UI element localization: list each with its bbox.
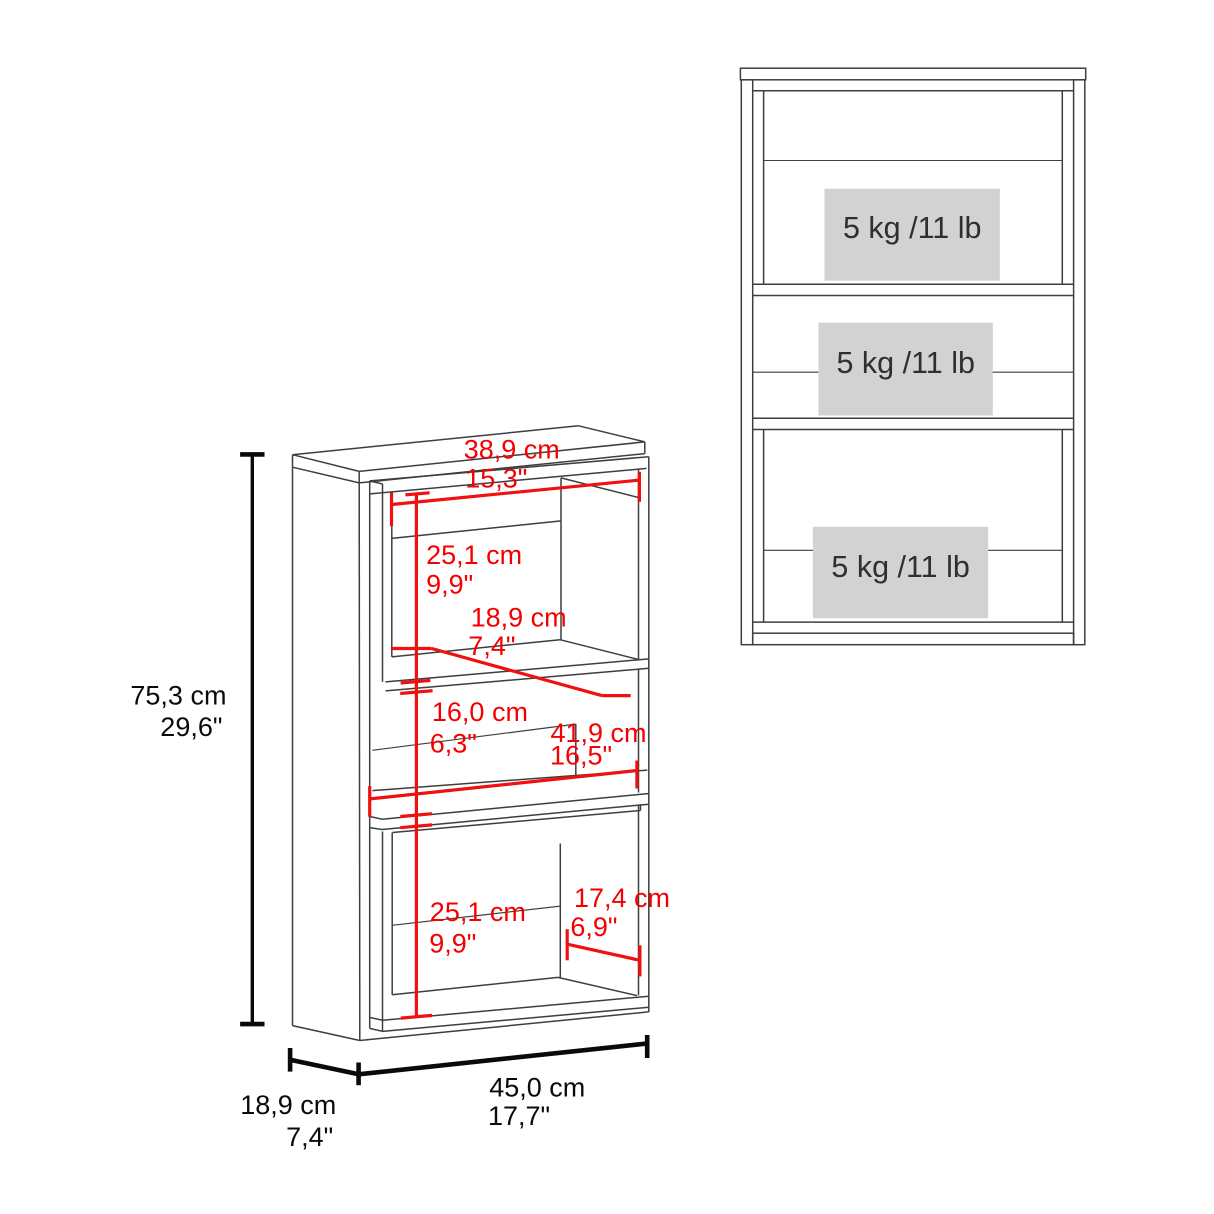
- svg-text:15,3": 15,3": [465, 464, 527, 494]
- svg-text:25,1 cm: 25,1 cm: [430, 897, 526, 927]
- svg-text:9,9": 9,9": [426, 570, 473, 600]
- svg-text:5 kg /11 lb: 5 kg /11 lb: [831, 550, 969, 584]
- svg-text:25,1 cm: 25,1 cm: [426, 540, 522, 570]
- svg-text:5 kg /11 lb: 5 kg /11 lb: [837, 346, 975, 380]
- svg-text:5 kg /11 lb: 5 kg /11 lb: [843, 211, 981, 245]
- svg-text:17,7": 17,7": [488, 1101, 550, 1131]
- svg-text:6,9": 6,9": [570, 912, 617, 942]
- svg-text:45,0 cm: 45,0 cm: [489, 1072, 585, 1102]
- svg-text:18,9 cm: 18,9 cm: [471, 603, 567, 633]
- svg-text:38,9 cm: 38,9 cm: [464, 435, 560, 465]
- svg-text:17,4 cm: 17,4 cm: [574, 883, 670, 913]
- svg-text:16,5": 16,5": [550, 741, 612, 771]
- svg-text:16,0 cm: 16,0 cm: [432, 697, 528, 727]
- svg-text:7,4": 7,4": [468, 631, 515, 661]
- svg-text:18,9 cm: 18,9 cm: [240, 1090, 336, 1120]
- svg-text:9,9": 9,9": [429, 928, 476, 958]
- svg-text:7,4": 7,4": [286, 1122, 333, 1152]
- svg-text:75,3 cm: 75,3 cm: [130, 680, 226, 710]
- svg-text:29,6": 29,6": [160, 712, 222, 742]
- svg-text:6,3": 6,3": [430, 728, 477, 758]
